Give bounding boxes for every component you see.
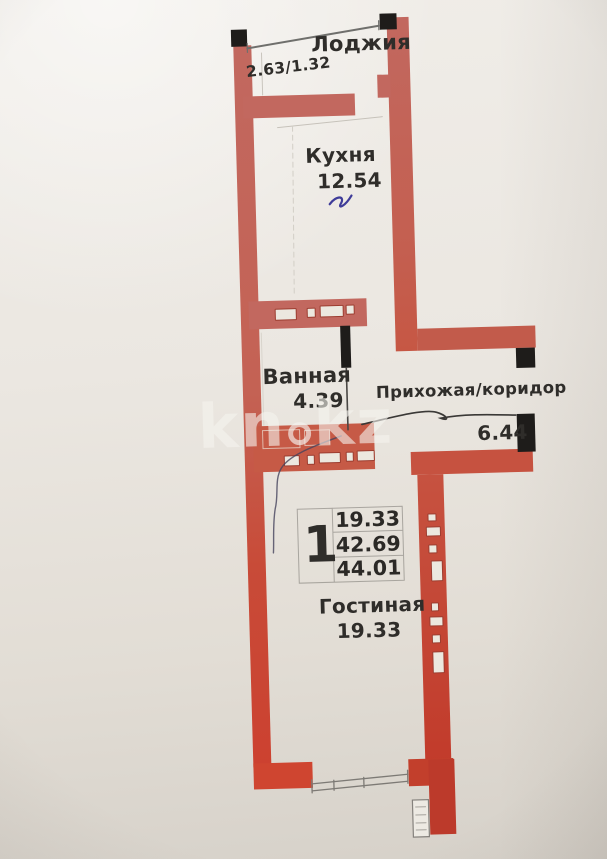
watermark-part2: kz [313, 386, 395, 459]
bottom-window [312, 770, 409, 793]
legend-living-area: 19.33 [332, 506, 403, 533]
pen-check-kitchen [329, 196, 351, 207]
room-area-corridor: 6.44 [477, 420, 528, 445]
radiator-symbol [412, 800, 429, 837]
watermark-part1: kn [197, 390, 287, 463]
plan-drawing: Лоджия 2.63/1.32 Кухня 12.54 Ванная 4.39… [0, 0, 607, 859]
room-area-livingroom: 19.33 [336, 617, 401, 643]
room-label-livingroom: Гостиная [319, 592, 426, 619]
room-label-loggia: Лоджия [311, 30, 411, 57]
kitchen-faint-line [277, 117, 382, 128]
legend-total-area: 44.01 [334, 555, 405, 582]
legend-usable-area: 42.69 [333, 531, 404, 558]
floor-plan-scan: Лоджия 2.63/1.32 Кухня 12.54 Ванная 4.39… [0, 0, 607, 859]
watermark-knkz: knkz [197, 391, 395, 457]
watermark-drop-icon [288, 422, 312, 446]
legend-areas: 19.33 42.69 44.01 [332, 506, 404, 582]
room-area-kitchen: 12.54 [317, 168, 382, 194]
kitchen-crease-line [290, 126, 298, 296]
room-label-bathroom: Ванная [262, 363, 351, 389]
room-label-kitchen: Кухня [305, 142, 376, 168]
